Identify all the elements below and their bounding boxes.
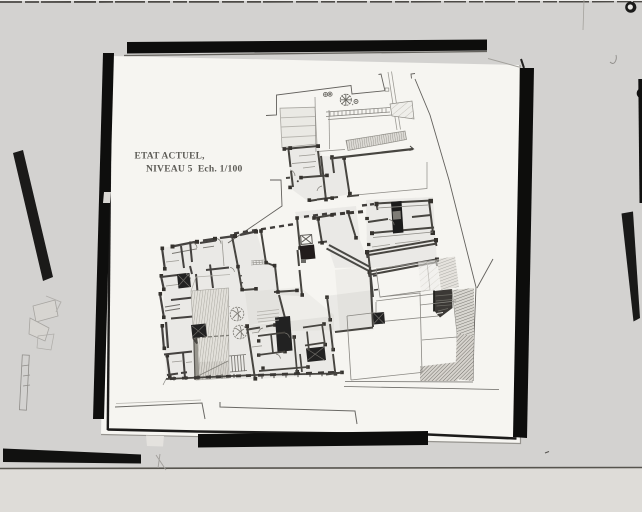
svg-text:ETAT ACTUEL,: ETAT ACTUEL, <box>135 152 205 162</box>
svg-text:NIVEAU 5 Ech. 1/100: NIVEAU 5 Ech. 1/100 <box>146 164 242 175</box>
